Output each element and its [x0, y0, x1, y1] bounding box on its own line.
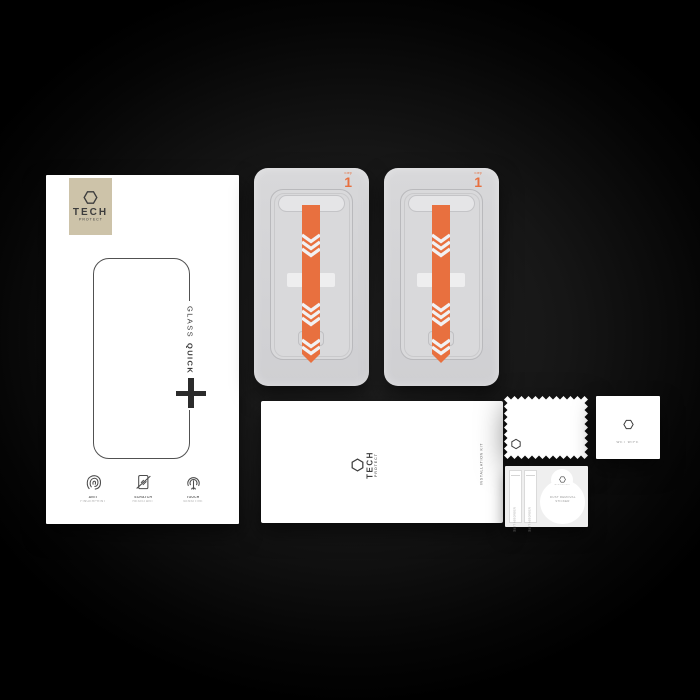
feature-anti-fingerprint: ANTI FINGERPRINT — [70, 472, 116, 504]
brand-subname: PROTECT — [375, 453, 378, 477]
dust-absorber-strip-1: DUST ABSORBER — [509, 470, 522, 523]
fingerprint-icon — [83, 472, 104, 493]
brand-name: TECH — [73, 207, 108, 218]
pull-tab-strip — [432, 205, 450, 365]
product-photo-scene: TECH PROTECT GLASSQUICK SET ANTI FINGERP… — [0, 0, 700, 700]
hexagon-logo-icon — [623, 419, 634, 430]
dust-strip-label: DUST ABSORBER — [514, 507, 517, 532]
installation-kit-envelope: TECH PROTECT INSTALLATION KIT — [261, 401, 503, 523]
feature-touch-sensitive: TOUCH SENSITIVE — [170, 472, 216, 504]
hexagon-logo-icon — [351, 458, 365, 472]
brand-logo-plate: TECH PROTECT — [69, 178, 112, 235]
hexagon-logo-icon — [559, 476, 566, 483]
touch-icon — [183, 472, 204, 493]
divider — [511, 475, 520, 476]
wet-wipe-label: WET WIPE — [617, 441, 640, 444]
hexagon-logo-icon — [83, 190, 98, 205]
phone-outline-drawing — [93, 258, 190, 459]
step-number: 1 — [338, 176, 352, 189]
scratch-icon — [133, 472, 154, 493]
sticker-content: TECH PROTECT DUST REMOVAL STICKER — [539, 469, 586, 524]
glass-label-regular: GLASS — [186, 306, 195, 338]
installation-tray-1: Step 1 — [254, 168, 369, 386]
feature-sublabel: FINGERPRINT — [80, 500, 105, 502]
dust-absorber-strip-2: DUST ABSORBER — [524, 470, 537, 523]
divider — [526, 475, 535, 476]
feature-icons-row: ANTI FINGERPRINT SCRATCH RESISTANT — [70, 472, 216, 504]
dust-strip-label: DUST ABSORBER — [529, 507, 532, 532]
hexagon-logo-icon — [511, 439, 522, 450]
step-badge: Step 1 — [338, 172, 352, 189]
plus-symbol — [174, 376, 208, 410]
dust-sticker-label-line1: DUST REMOVAL — [550, 496, 576, 498]
step-word: Step — [344, 172, 352, 174]
pull-tab-strip — [302, 205, 320, 365]
wet-cloth-sachet-overlay — [504, 396, 588, 459]
wet-wipe-sachet: WET WIPE — [596, 396, 660, 459]
feature-label: ANTI — [89, 496, 98, 498]
installation-kit-label: INSTALLATION KIT — [480, 443, 484, 485]
rotated-brand-logo: TECH PROTECT — [351, 430, 380, 500]
feature-label: TOUCH — [186, 496, 199, 498]
retail-box: TECH PROTECT GLASSQUICK SET ANTI FINGERP… — [46, 175, 239, 524]
step-word: Step — [474, 172, 482, 174]
step-number: 1 — [468, 176, 482, 189]
installation-tray-2: Step 1 — [384, 168, 499, 386]
feature-sublabel: RESISTANT — [133, 500, 154, 502]
step-badge: Step 1 — [468, 172, 482, 189]
micro-brand-text: TECH PROTECT — [554, 484, 571, 485]
dust-sticker-card: DUST ABSORBER DUST ABSORBER TECH PROTECT… — [505, 466, 588, 527]
feature-sublabel: SENSITIVE — [183, 500, 203, 502]
feature-label: SCRATCH — [134, 496, 152, 498]
feature-scratch-resistant: SCRATCH RESISTANT — [120, 472, 166, 504]
dust-sticker-label-line2: STICKER — [555, 500, 569, 502]
dust-removal-sticker: TECH PROTECT DUST REMOVAL STICKER — [539, 469, 586, 524]
brand-subname: PROTECT — [79, 218, 103, 221]
brand-name: TECH — [366, 451, 375, 479]
rotated-hexagon-logo — [509, 439, 527, 450]
